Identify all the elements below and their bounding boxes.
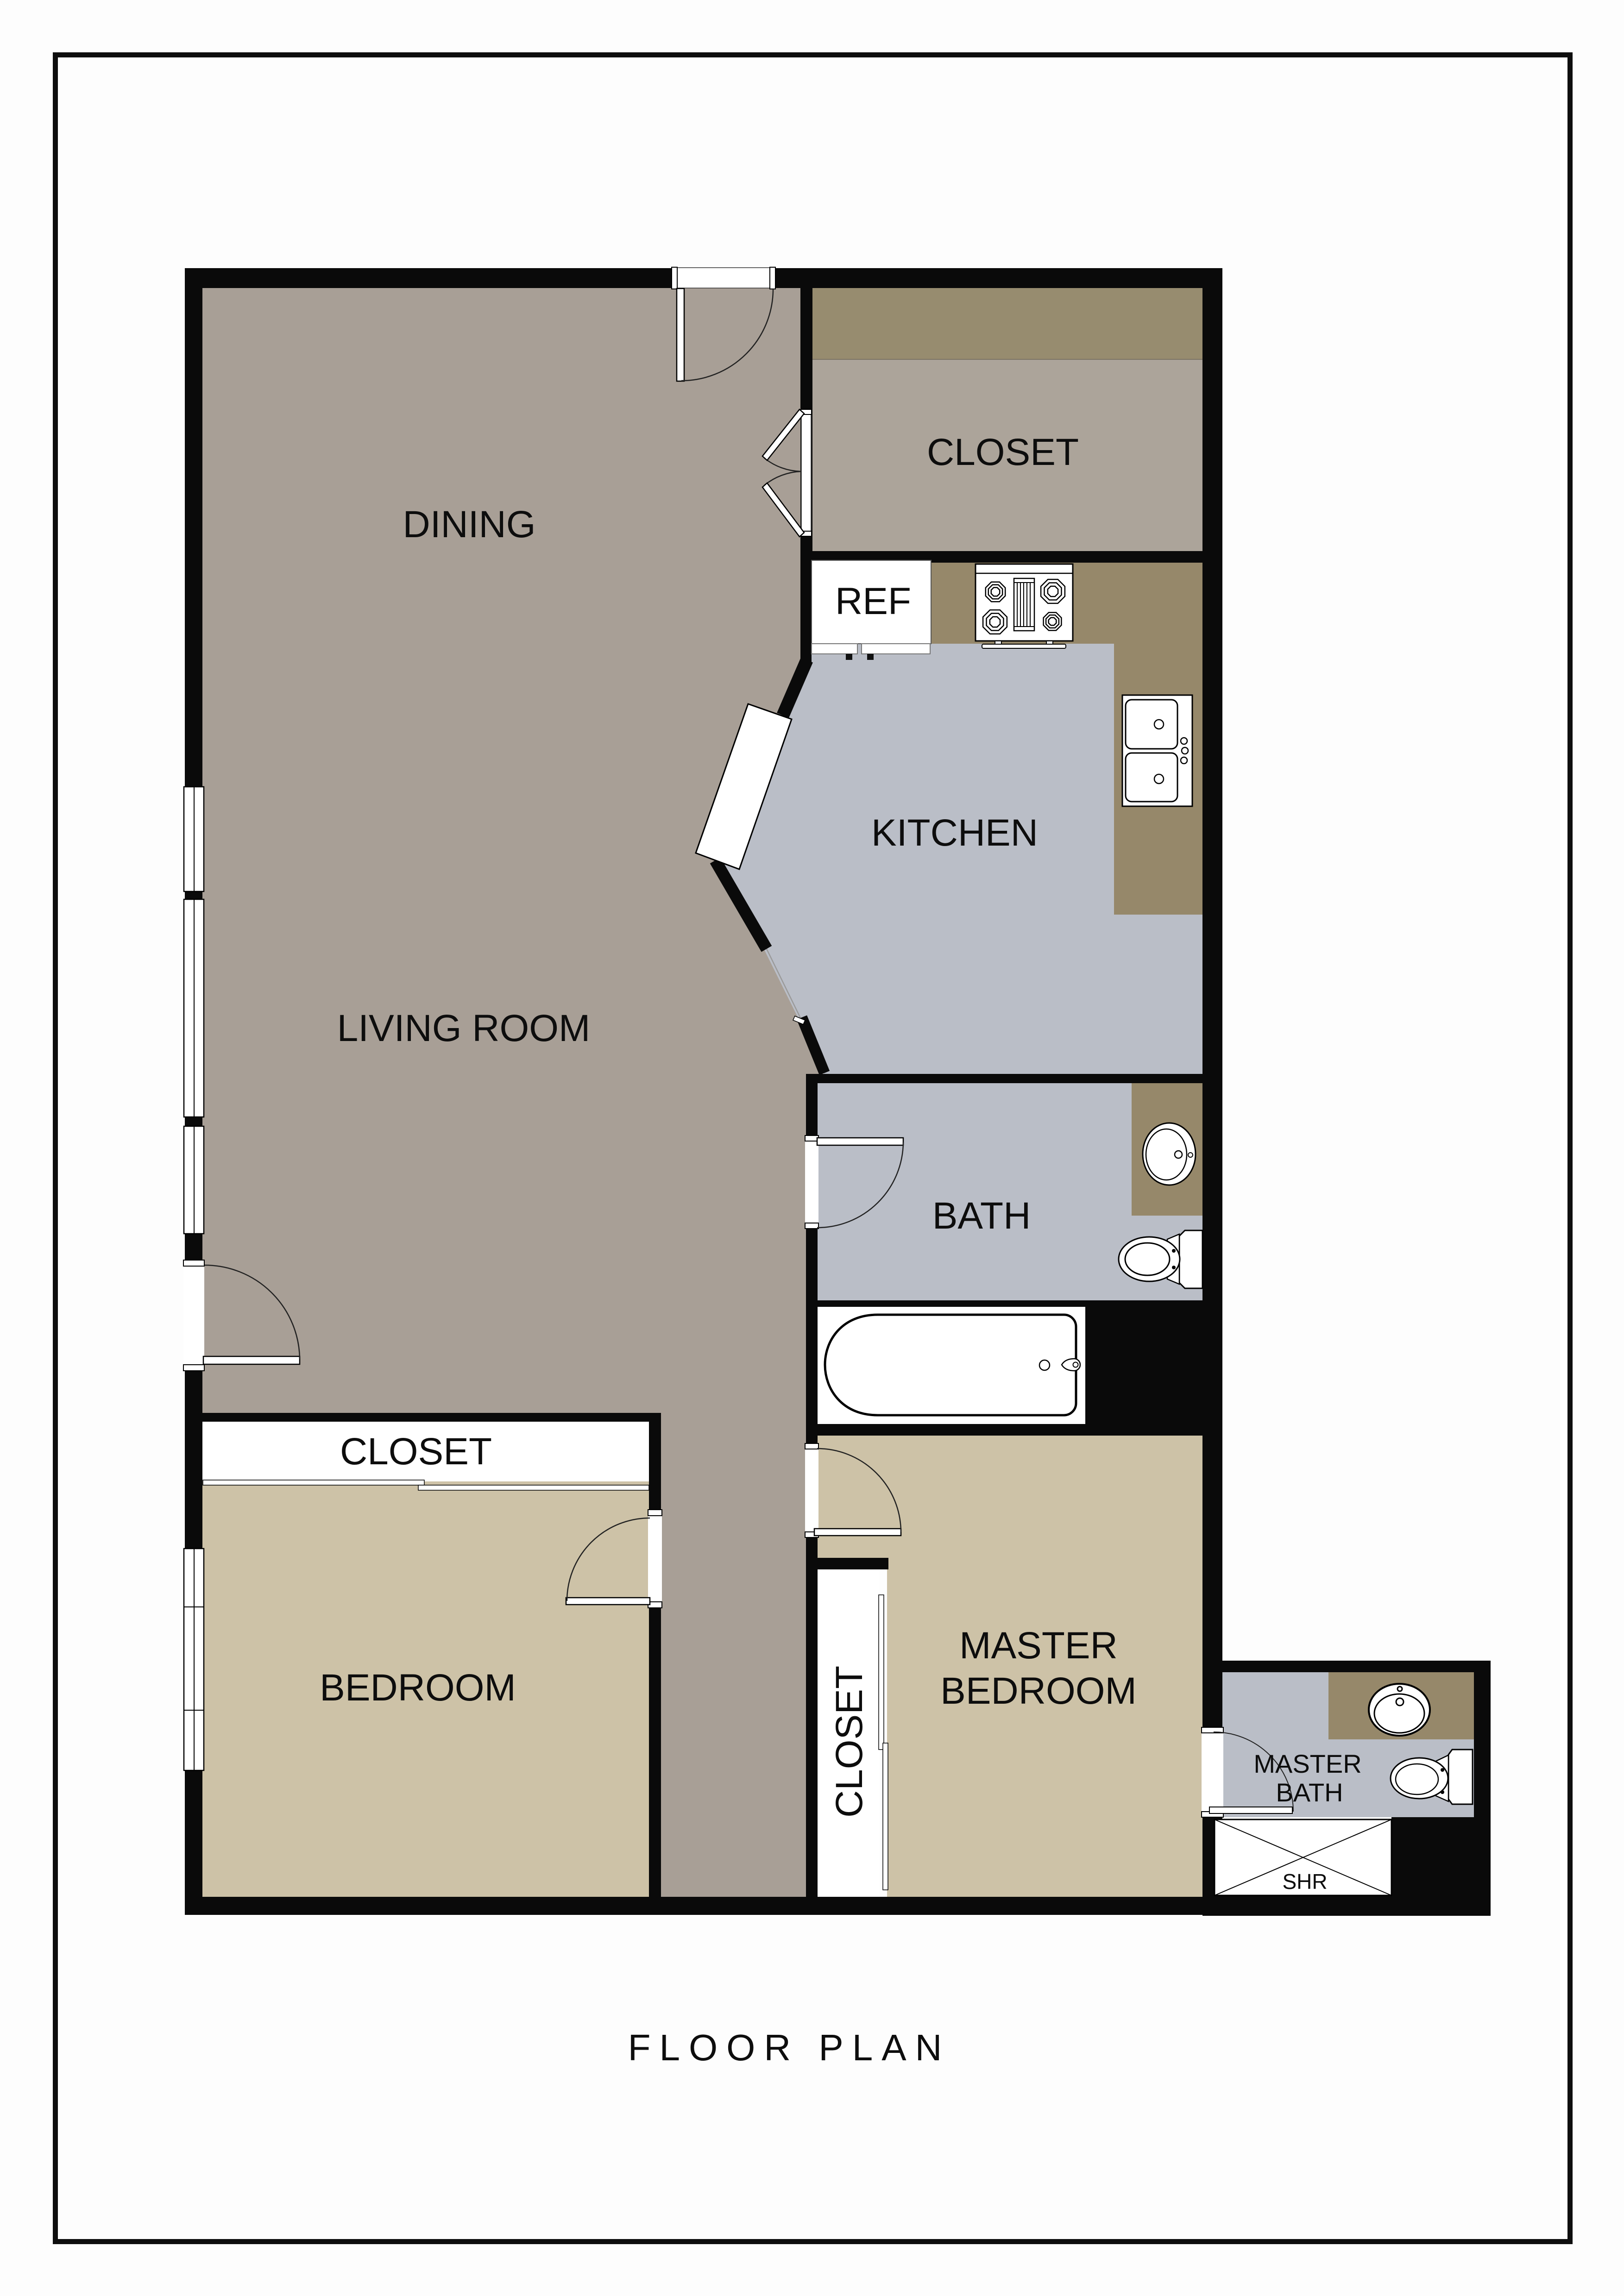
svg-text:MASTER: MASTER — [959, 1625, 1118, 1667]
svg-text:SHR: SHR — [1282, 1869, 1327, 1894]
svg-text:LIVING ROOM: LIVING ROOM — [337, 1007, 591, 1049]
svg-text:CLOSET: CLOSET — [927, 431, 1079, 473]
svg-text:BEDROOM: BEDROOM — [940, 1670, 1137, 1712]
svg-text:FLOOR PLAN: FLOOR PLAN — [628, 2027, 951, 2068]
svg-text:BATH: BATH — [932, 1195, 1031, 1237]
svg-text:CLOSET: CLOSET — [340, 1430, 492, 1473]
svg-text:REF: REF — [835, 580, 911, 622]
svg-text:DINING: DINING — [403, 503, 536, 546]
svg-text:BATH: BATH — [1276, 1778, 1343, 1807]
svg-text:KITCHEN: KITCHEN — [871, 812, 1038, 854]
svg-text:MASTER: MASTER — [1253, 1749, 1361, 1778]
svg-text:CLOSET: CLOSET — [828, 1666, 870, 1818]
svg-text:BEDROOM: BEDROOM — [320, 1667, 516, 1709]
